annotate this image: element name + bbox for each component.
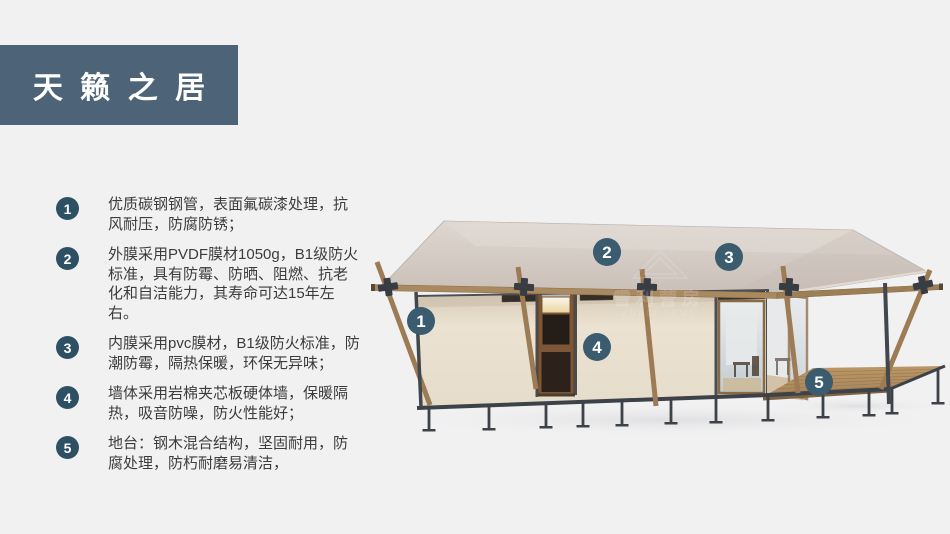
feature-number-badge: 1: [56, 197, 79, 220]
feature-number-badge: 4: [56, 386, 79, 409]
feature-text: 地台：钢木混合结构，坚固耐用，防腐处理，防朽耐磨易清洁，: [108, 434, 362, 473]
feature-list: 1 优质碳钢钢管，表面氟碳漆处理，抗风耐压，防腐防锈； 2 外膜采用PVDF膜材…: [56, 195, 372, 484]
watermark-en-text: XUELI TENT: [622, 308, 697, 318]
feature-text: 内膜采用pvc膜材，B1级防火标准，防潮防霉，隔热保暖，环保无异味；: [108, 334, 362, 373]
callout-marker-5: 5: [805, 368, 833, 396]
tent-render-svg: 雪利营房 XUELI TENT 1 2 3 4: [365, 198, 950, 440]
feature-item-2: 2 外膜采用PVDF膜材1050g，B1级防火标准，具有防霉、防晒、阻燃、抗老化…: [56, 245, 372, 323]
watermark-cn-text: 雪利营房: [613, 288, 705, 309]
feature-number-badge: 5: [56, 436, 79, 459]
feature-number-badge: 2: [56, 247, 79, 270]
svg-text:3: 3: [724, 248, 733, 267]
feature-item-3: 3 内膜采用pvc膜材，B1级防火标准，防潮防霉，隔热保暖，环保无异味；: [56, 334, 372, 373]
feature-item-4: 4 墙体采用岩棉夹芯板硬体墙，保暖隔热，吸音防噪，防火性能好；: [56, 384, 372, 423]
feature-text: 外膜采用PVDF膜材1050g，B1级防火标准，具有防霉、防晒、阻燃、抗老化和自…: [108, 245, 362, 323]
svg-text:1: 1: [416, 312, 425, 331]
svg-text:4: 4: [592, 338, 602, 357]
page-title: 天籁之居: [16, 63, 223, 107]
feature-text: 墙体采用岩棉夹芯板硬体墙，保暖隔热，吸音防噪，防火性能好；: [108, 384, 362, 423]
callout-marker-2: 2: [593, 238, 621, 266]
svg-text:5: 5: [814, 373, 823, 392]
page: 天籁之居 1 优质碳钢钢管，表面氟碳漆处理，抗风耐压，防腐防锈； 2 外膜采用P…: [0, 0, 950, 534]
feature-item-1: 1 优质碳钢钢管，表面氟碳漆处理，抗风耐压，防腐防锈；: [56, 195, 372, 234]
svg-text:2: 2: [602, 243, 611, 262]
title-block: 天籁之居: [0, 45, 238, 125]
tent-illustration: 雪利营房 XUELI TENT 1 2 3 4: [365, 198, 950, 440]
callout-marker-3: 3: [715, 243, 743, 271]
feature-text: 优质碳钢钢管，表面氟碳漆处理，抗风耐压，防腐防锈；: [108, 195, 362, 234]
feature-item-5: 5 地台：钢木混合结构，坚固耐用，防腐处理，防朽耐磨易清洁，: [56, 434, 372, 473]
callout-marker-1: 1: [407, 307, 435, 335]
entry-door: [536, 291, 578, 397]
callout-marker-4: 4: [583, 333, 611, 361]
feature-number-badge: 3: [56, 336, 79, 359]
